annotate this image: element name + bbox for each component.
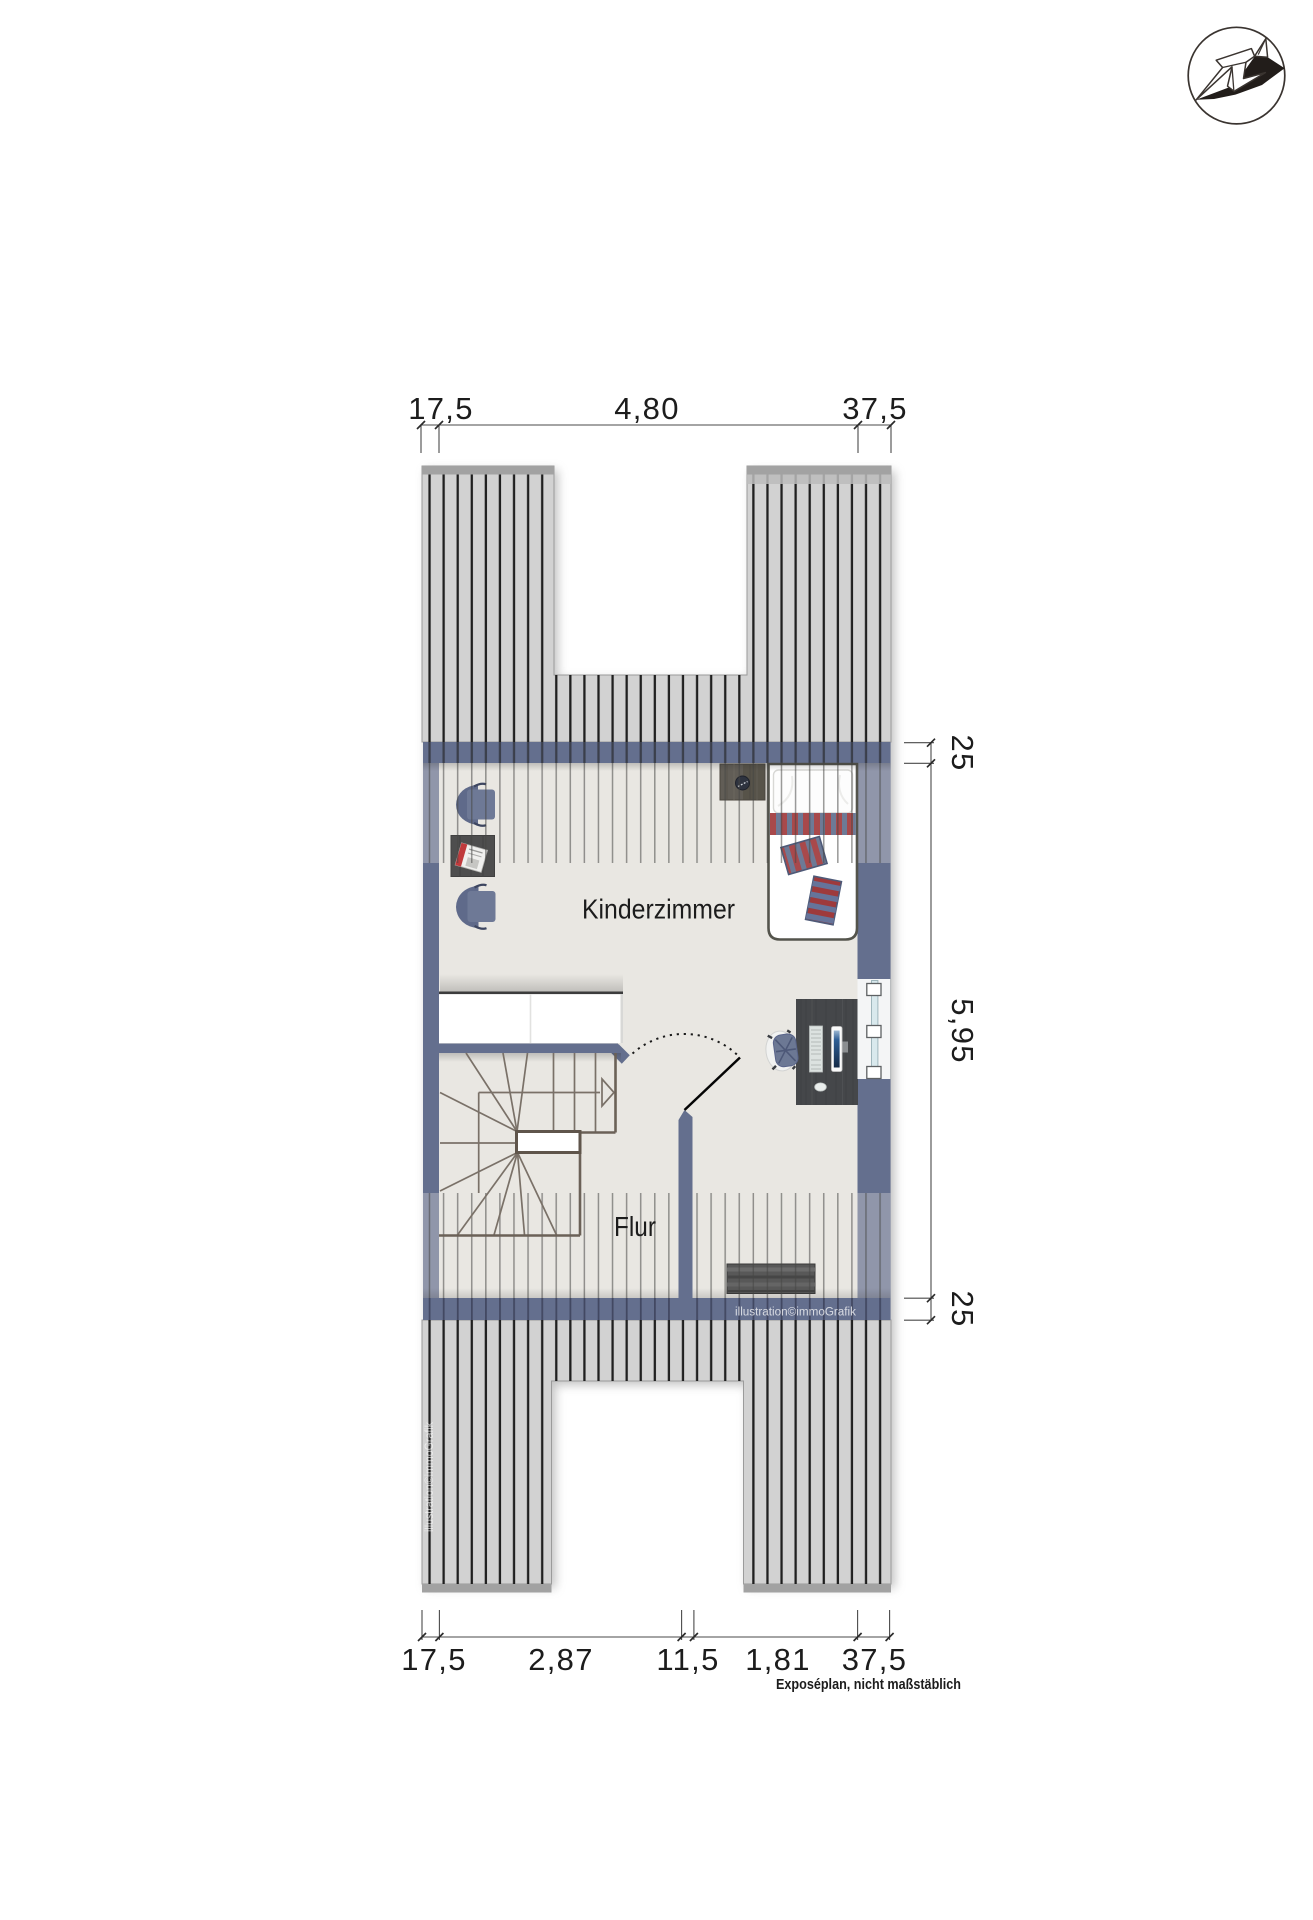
svg-text:Exposéplan, nicht maßstäblich: Exposéplan, nicht maßstäblich	[776, 1677, 961, 1693]
svg-text:11,5: 11,5	[656, 1642, 719, 1677]
svg-text:37,5: 37,5	[842, 1642, 908, 1677]
svg-text:25: 25	[945, 1290, 980, 1327]
svg-text:5,95: 5,95	[945, 998, 980, 1064]
svg-text:Kinderzimmer: Kinderzimmer	[582, 894, 735, 925]
svg-text:2,87: 2,87	[528, 1642, 594, 1677]
svg-text:illustration©immoGrafik: illustration©immoGrafik	[422, 1421, 436, 1532]
svg-text:17,5: 17,5	[401, 1642, 467, 1677]
svg-text:37,5: 37,5	[842, 391, 908, 426]
svg-text:1,81: 1,81	[745, 1642, 811, 1677]
svg-text:17,5: 17,5	[408, 391, 474, 426]
svg-text:illustration©immoGrafik: illustration©immoGrafik	[735, 1307, 856, 1319]
svg-text:Flur: Flur	[614, 1211, 656, 1242]
svg-text:4,80: 4,80	[614, 391, 680, 426]
svg-text:25: 25	[945, 734, 980, 771]
